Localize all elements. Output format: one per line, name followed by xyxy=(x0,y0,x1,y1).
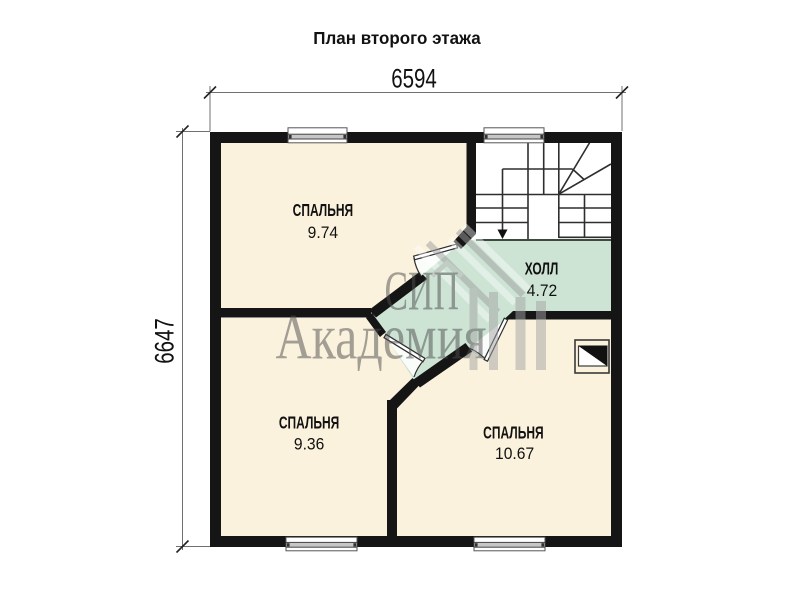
svg-text:9.36: 9.36 xyxy=(294,435,324,454)
svg-text:СПАЛЬНЯ: СПАЛЬНЯ xyxy=(293,201,353,221)
svg-text:6594: 6594 xyxy=(391,64,437,94)
svg-text:СПАЛЬНЯ: СПАЛЬНЯ xyxy=(279,413,339,433)
svg-text:10.67: 10.67 xyxy=(495,444,534,463)
svg-text:Академия: Академия xyxy=(275,300,486,373)
svg-text:ХОЛЛ: ХОЛЛ xyxy=(525,260,559,280)
svg-text:4.72: 4.72 xyxy=(527,281,557,300)
svg-text:План второго этажа: План второго этажа xyxy=(313,28,481,49)
svg-text:6647: 6647 xyxy=(150,318,180,364)
svg-text:9.74: 9.74 xyxy=(308,223,338,242)
svg-text:СПАЛЬНЯ: СПАЛЬНЯ xyxy=(483,423,543,443)
